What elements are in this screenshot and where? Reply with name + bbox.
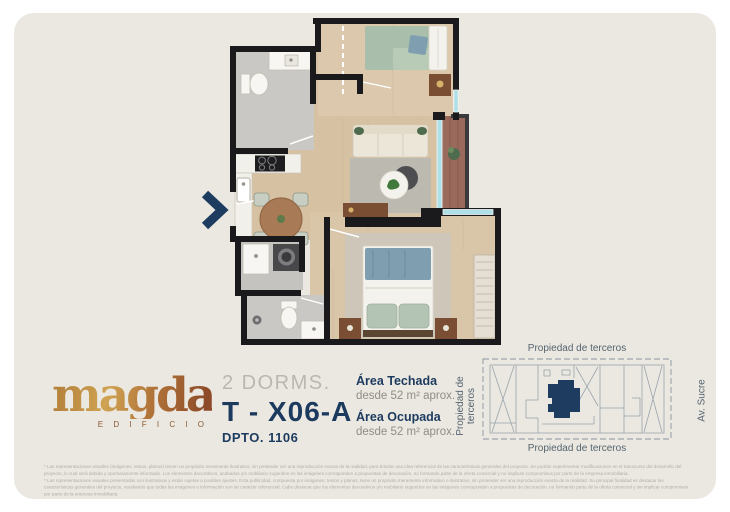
living-room: [343, 125, 431, 217]
toilet: [250, 73, 268, 95]
kitchen-sink: [237, 178, 250, 202]
unit-block: 2 DORMS. T - X06-A DPTO. 1106: [222, 372, 372, 445]
bathroom-2: [245, 295, 328, 341]
site-map-label-left: Propiedad de terceros: [455, 360, 477, 452]
balcony: [437, 114, 469, 210]
site-map-label-bottom: Propiedad de terceros: [480, 443, 674, 454]
floor-plan: [193, 18, 515, 350]
flyer-page: magda E D I F I C I O 2 DORMS. T - X06-A…: [0, 0, 730, 512]
site-map-sketch: [482, 358, 672, 440]
site-map-label-right: Av. Sucre: [697, 355, 708, 447]
unit-dpto: DPTO. 1106: [222, 430, 372, 445]
legal-paragraph-1: * Las representaciones visuales (imágene…: [44, 463, 692, 477]
legal-paragraph-2: * Las representaciones visuales presenta…: [44, 477, 692, 498]
toilet: [281, 307, 297, 329]
highlighted-unit: [548, 380, 580, 418]
unit-dorms: 2 DORMS.: [222, 372, 372, 395]
brand-logo: magda E D I F I C I O: [52, 372, 212, 429]
site-map-label-top: Propiedad de terceros: [480, 343, 674, 354]
legal-disclaimer: * Las representaciones visuales (imágene…: [44, 463, 692, 497]
entrance-chevron-icon: [205, 194, 222, 226]
glass-wall: [437, 116, 442, 210]
brand-wordmark: magda: [52, 372, 212, 419]
closet: [474, 255, 495, 338]
laundry: [238, 242, 303, 290]
site-map: Propiedad de terceros Propiedad de terce…: [456, 341, 702, 461]
unit-code: T - X06-A: [222, 396, 372, 428]
